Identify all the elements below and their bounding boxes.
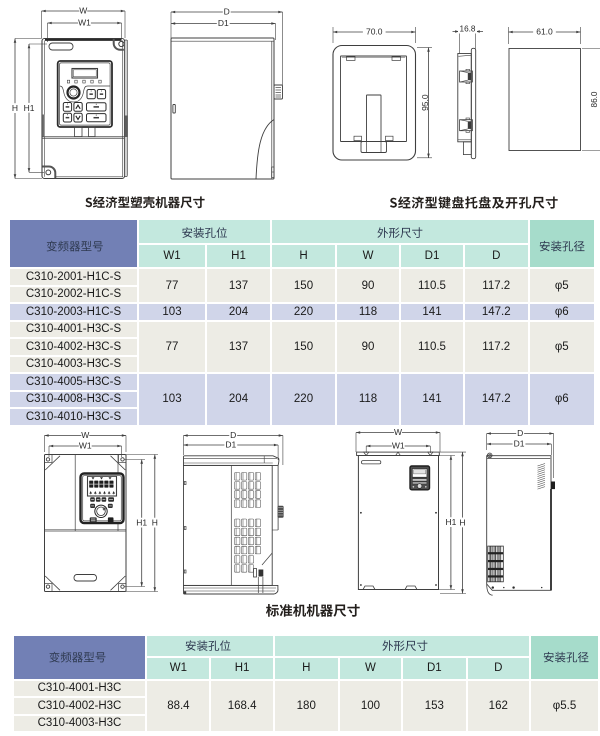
svg-text:16.8: 16.8 [460,25,476,34]
svg-text:H1: H1 [24,103,35,113]
svg-text:70.0: 70.0 [366,27,383,37]
svg-text:86.0: 86.0 [590,91,599,107]
svg-text:D: D [224,7,230,17]
svg-text:H: H [459,518,465,528]
svg-text:D1: D1 [225,440,236,450]
svg-text:H: H [152,518,158,528]
svg-text:W1: W1 [78,18,91,28]
svg-text:W: W [79,6,87,16]
svg-text:95.0: 95.0 [420,94,430,111]
svg-text:D: D [230,430,236,440]
svg-text:W1: W1 [392,441,405,451]
svg-text:D1: D1 [218,18,229,28]
svg-text:H: H [12,103,18,113]
svg-text:D1: D1 [514,439,525,449]
svg-text:H1: H1 [136,518,147,528]
svg-text:W1: W1 [79,441,92,451]
svg-text:D: D [517,428,523,438]
svg-text:H1: H1 [445,517,456,527]
svg-text:W: W [394,427,402,437]
svg-text:61.0: 61.0 [536,27,553,37]
svg-text:W: W [81,430,89,440]
